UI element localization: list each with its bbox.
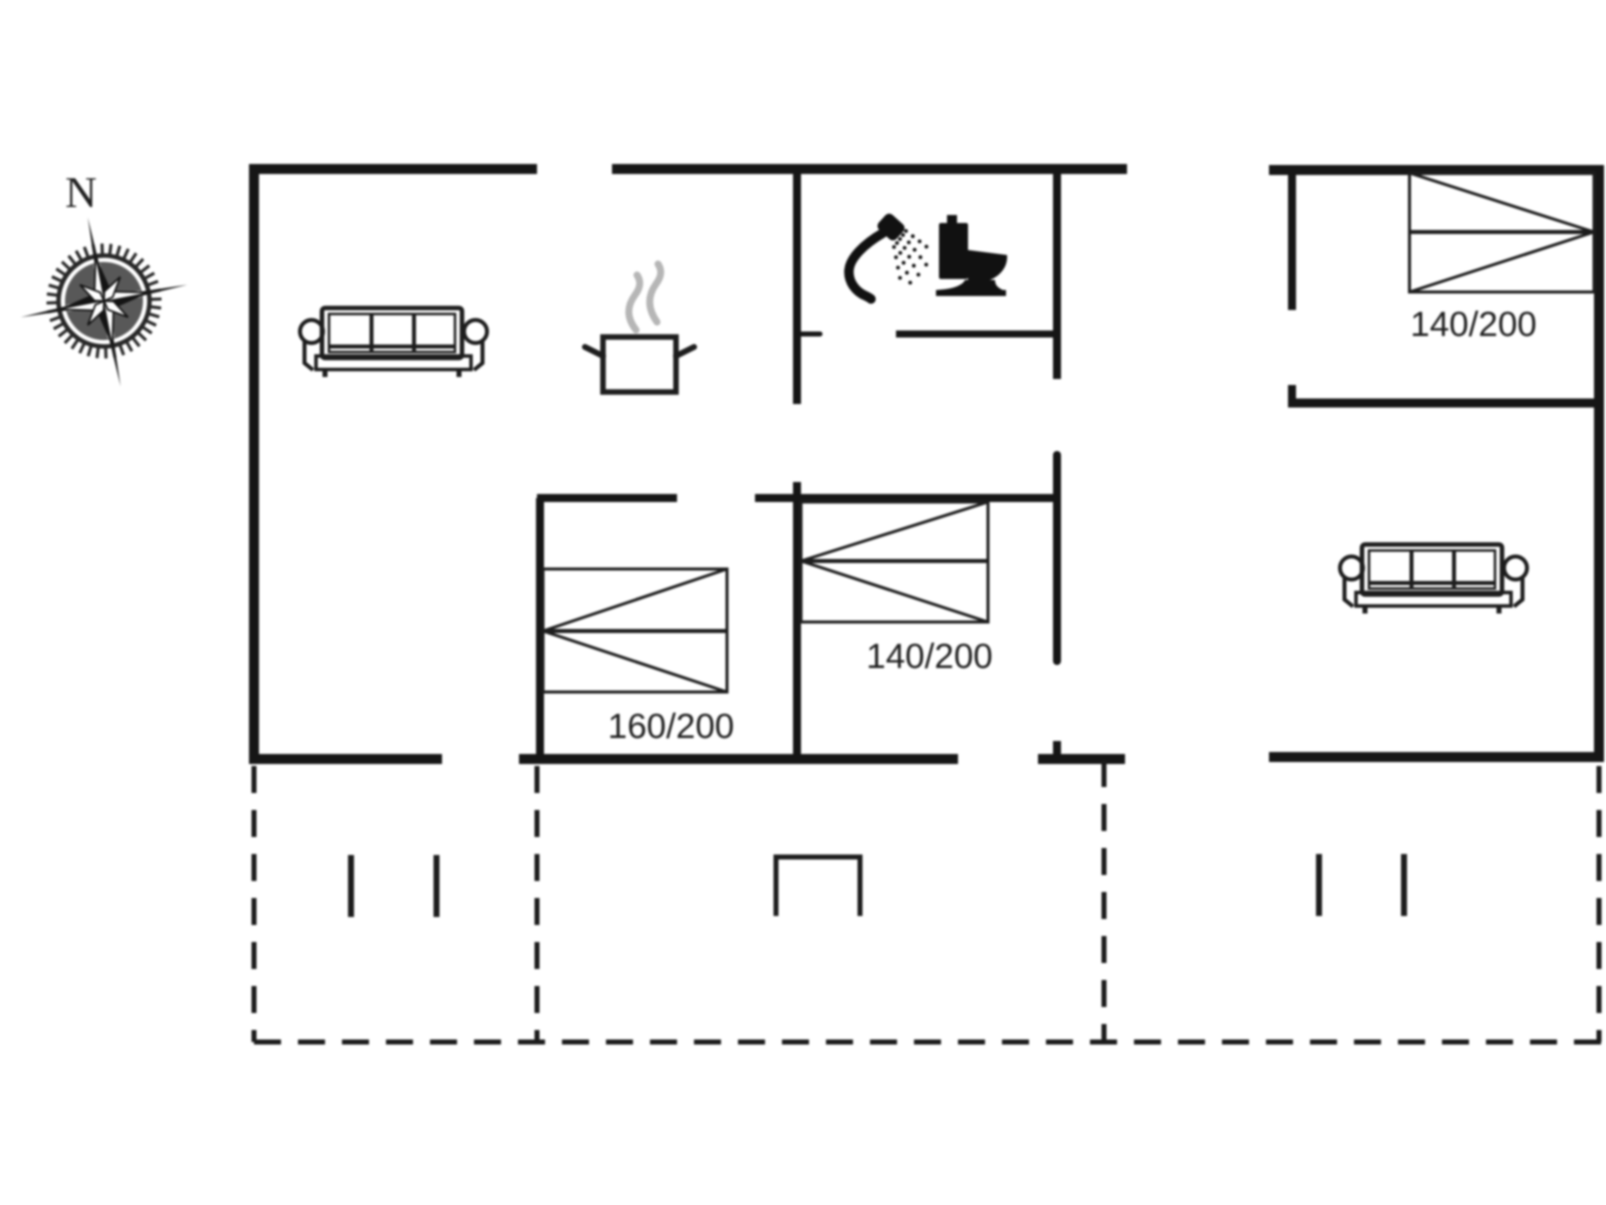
- svg-text:140/200: 140/200: [866, 637, 993, 676]
- svg-text:N: N: [65, 168, 97, 217]
- svg-text:160/200: 160/200: [608, 707, 735, 746]
- svg-text:140/200: 140/200: [1410, 305, 1537, 344]
